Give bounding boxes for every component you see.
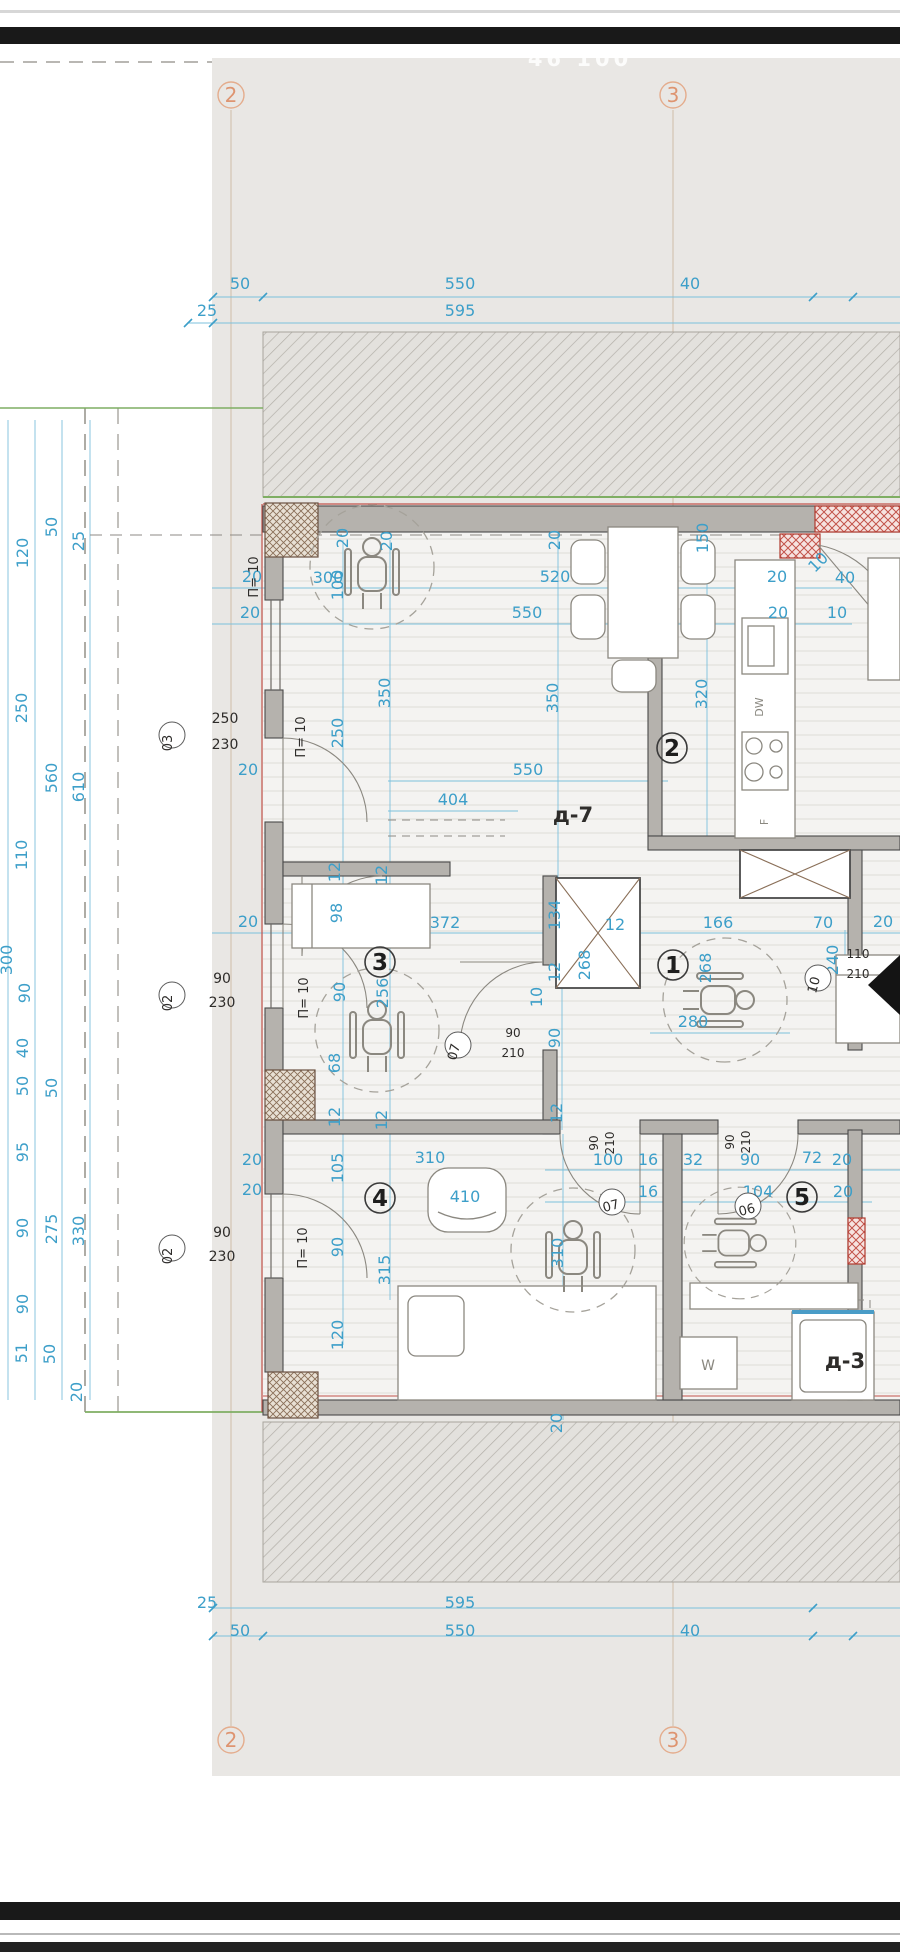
dim-label: 550 [445, 1621, 476, 1640]
dim-label: 150 [693, 523, 712, 554]
dim-label: 275 [42, 1214, 61, 1245]
dim-label: 560 [42, 763, 61, 794]
dining-table [608, 527, 678, 658]
room-number-label: 4 [372, 1186, 388, 1212]
dim-label: 20 [547, 1413, 566, 1433]
plan-text-label: 110 [847, 947, 870, 961]
dim-label: 40 [13, 1038, 32, 1058]
dim-label: 105 [328, 1153, 347, 1184]
dim-label: 310 [548, 1238, 567, 1269]
dim-label: 20 [238, 760, 258, 779]
bath-vanity [690, 1283, 858, 1309]
dim-label: 20 [67, 1382, 86, 1402]
dim-label: 70 [813, 913, 833, 932]
dim-label: 98 [327, 903, 346, 923]
dim-label: 20 [768, 603, 788, 622]
dim-label: 404 [438, 790, 469, 809]
dim-label: 68 [325, 1053, 344, 1073]
dim-label: 32 [683, 1150, 703, 1169]
burner [746, 738, 762, 754]
dim-label: 595 [445, 1593, 476, 1612]
dim-label: 40 [680, 1621, 700, 1640]
plan-text-label: 90 [213, 971, 231, 987]
dim-label: 20 [767, 567, 787, 586]
dim-label: 90 [545, 1028, 564, 1048]
dim-label: 90 [13, 1218, 32, 1238]
dim-label: 250 [12, 693, 31, 724]
dim-label: 25 [197, 301, 217, 320]
dim-label: 320 [692, 679, 711, 710]
plan-text-label: П= 10 [296, 1227, 311, 1268]
dim-label: 10 [827, 603, 847, 622]
dim-label: 166 [703, 913, 734, 932]
chair [571, 540, 605, 584]
dim-label: 25 [69, 531, 88, 551]
plan-text-label: 90 [587, 1135, 601, 1150]
opening-tag-label: 03 [161, 735, 176, 752]
dim-label: 315 [375, 1255, 394, 1286]
dim-label: 20 [873, 912, 893, 931]
plan-text-label: 210 [603, 1132, 617, 1155]
opening-tag-label: 02 [161, 1248, 176, 1265]
dim-label: 20 [333, 528, 352, 548]
hatch-band-top [263, 332, 900, 497]
dim-label: 280 [678, 1012, 709, 1031]
dim-label: 16 [638, 1182, 658, 1201]
chair [612, 660, 656, 692]
room-number-label: 1 [665, 953, 681, 979]
dim-label: 12 [325, 862, 344, 882]
dim-label: 12 [325, 1107, 344, 1127]
dim-label: 120 [13, 538, 32, 569]
plan-text-label: F [758, 819, 771, 825]
plan-text-label: П= 10 [297, 977, 312, 1018]
burner [770, 766, 782, 778]
dim-label: 350 [543, 683, 562, 714]
plan-text-label: DW [753, 697, 766, 716]
dim-label: 90 [330, 982, 349, 1002]
dim-label: 40 [835, 568, 855, 587]
dim-label: 20 [832, 1150, 852, 1169]
bed-room3 [292, 884, 430, 948]
axis-marker-label: 2 [225, 83, 238, 107]
room-number-label: 3 [372, 950, 388, 976]
dim-label: 134 [545, 900, 564, 931]
plan-text-label: 210 [739, 1131, 753, 1154]
dim-label: 50 [13, 1076, 32, 1096]
dim-label: 250 [328, 718, 347, 749]
plan-text-label: 250 [212, 711, 239, 727]
dim-label: 20 [242, 1180, 262, 1199]
dim-label: 520 [540, 567, 571, 586]
room-number-label: 2 [664, 736, 680, 762]
dim-label: 16 [638, 1150, 658, 1169]
dim-label: 25 [197, 1593, 217, 1612]
dim-label: 550 [445, 274, 476, 293]
dim-label: 268 [575, 950, 594, 981]
chair [681, 595, 715, 639]
plan-text-label: 210 [847, 967, 870, 981]
dim-label: 256 [373, 978, 392, 1009]
dim-label: 50 [230, 1621, 250, 1640]
dim-label: 12 [547, 1103, 566, 1123]
dim-label: 20 [240, 603, 260, 622]
plan-text-label: 230 [209, 995, 236, 1011]
plan-text-label: W [701, 1358, 715, 1374]
wardrobe [868, 558, 900, 680]
dim-label: 90 [15, 983, 34, 1003]
dim-label: 90 [13, 1294, 32, 1314]
dim-label: 300 [0, 945, 16, 976]
plan-text-label: П= 10 [247, 556, 262, 597]
dim-label: 268 [696, 953, 715, 984]
plan-text-label: П= 10 [294, 716, 309, 757]
room-number-label: 5 [794, 1185, 810, 1211]
dim-label: 20 [833, 1182, 853, 1201]
dim-label: 110 [12, 840, 31, 871]
opening-tag-label: 02 [161, 995, 176, 1012]
plan-text-label: д-7 [553, 803, 593, 827]
dim-label: 90 [328, 1237, 347, 1257]
plan-text-label: 90 [213, 1225, 231, 1241]
watermark-text: 46 100 [528, 47, 632, 71]
axis-marker-label: 2 [225, 1728, 238, 1752]
dim-label: 40 [680, 274, 700, 293]
floor-plan-drawing: 46 100 505504025595120502525056061011030… [0, 0, 900, 1952]
dim-label: 12 [372, 1110, 391, 1130]
dim-label: 310 [415, 1148, 446, 1167]
dim-label: 10 [527, 987, 546, 1007]
dim-label: 410 [450, 1187, 481, 1206]
dim-label: 50 [40, 1344, 59, 1364]
dim-label: 120 [328, 1320, 347, 1351]
dim-label: 610 [69, 772, 88, 803]
screenshot-viewport: 46 100 505504025595120502525056061011030… [0, 0, 900, 1952]
chair [571, 595, 605, 639]
dim-label: 12 [605, 915, 625, 934]
axis-marker-label: 3 [667, 1728, 680, 1752]
dim-label: 50 [42, 517, 61, 537]
dim-label: 20 [242, 1150, 262, 1169]
burner [745, 763, 763, 781]
dim-label: 595 [445, 301, 476, 320]
axis-marker-label: 3 [667, 83, 680, 107]
dim-label: 100 [328, 570, 347, 601]
dim-label: 72 [802, 1148, 822, 1167]
plan-text-label: 230 [212, 737, 239, 753]
plan-text-label: 90 [723, 1134, 737, 1149]
dim-label: 330 [69, 1216, 88, 1247]
dim-label: 50 [42, 1078, 61, 1098]
plan-text-label: д-3 [825, 1349, 865, 1373]
dim-label: 12 [372, 865, 391, 885]
dim-label: 350 [375, 678, 394, 709]
dim-label: 550 [513, 760, 544, 779]
hatch-band-bottom [263, 1422, 900, 1582]
dim-label: 95 [13, 1142, 32, 1162]
dim-label: 20 [545, 530, 564, 550]
plan-text-label: 230 [209, 1249, 236, 1265]
plan-text-label: 90 [505, 1026, 520, 1040]
dim-label: 50 [230, 274, 250, 293]
dim-label: 20 [377, 531, 396, 551]
dim-label: 20 [238, 912, 258, 931]
dim-label: 372 [430, 913, 461, 932]
pillow [408, 1296, 464, 1356]
burner [770, 740, 782, 752]
kitchen-sink-basin [748, 626, 774, 666]
plan-text-label: 210 [502, 1046, 525, 1060]
dim-label: 12 [545, 962, 564, 982]
dim-label: 550 [512, 603, 543, 622]
dim-label: 51 [12, 1343, 31, 1363]
